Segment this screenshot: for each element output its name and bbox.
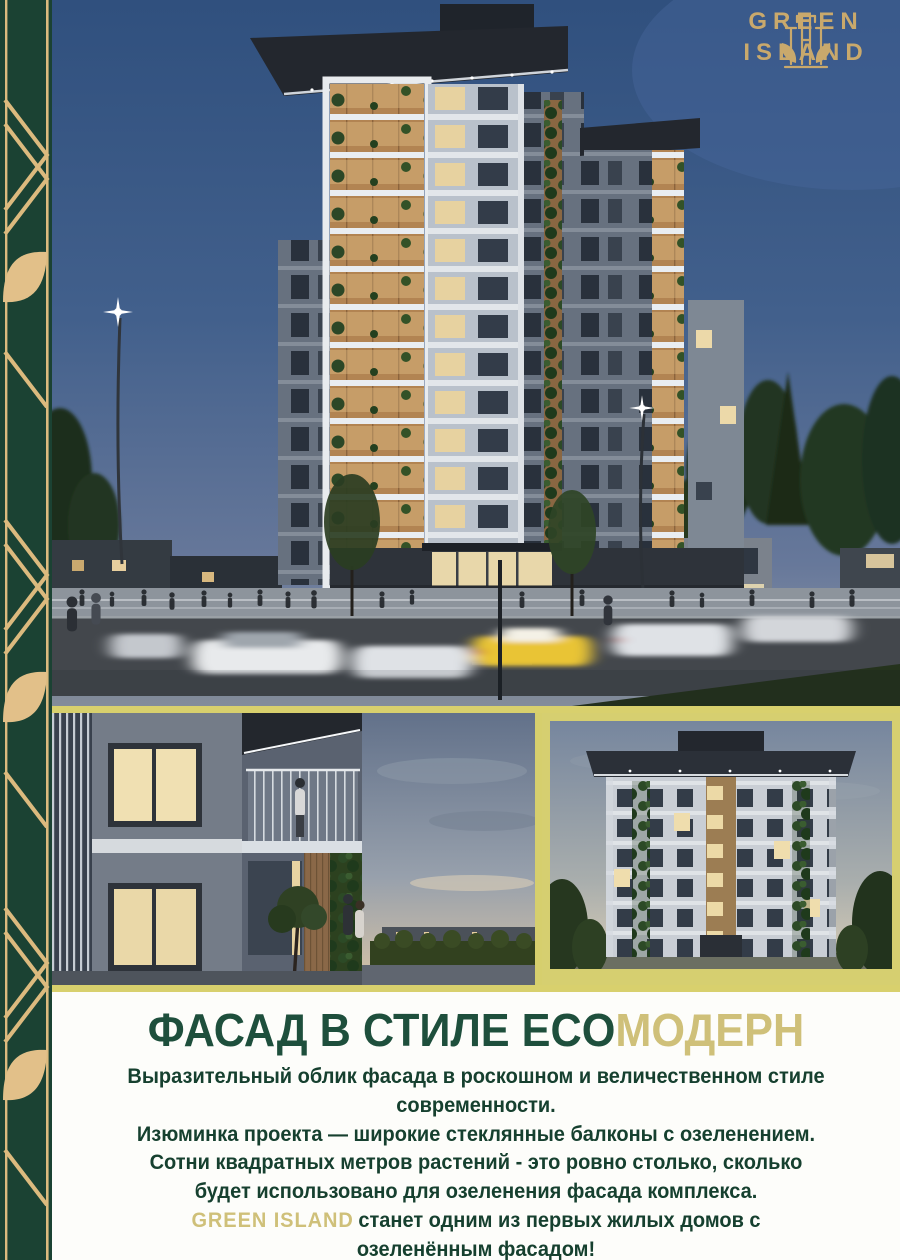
body-line: Выразительный облик фасада в роскошном и… [82,1062,871,1091]
title-green-part: ФАСАД В СТИЛЕ ECO [148,1004,616,1056]
brand-logo: GREEN ISLAND [722,6,890,68]
text-section: ФАСАД В СТИЛЕ ECOМОДЕРН Выразительный об… [52,992,900,1260]
corner-balconies [242,713,365,985]
body-copy: Выразительный облик фасада в роскошном и… [82,1062,871,1260]
highlight-rest: станет одним из первых жилых домов с [358,1208,760,1232]
decorative-sidebar [0,0,52,1260]
balcony-closeup-scene [52,713,535,985]
center-core [706,777,736,957]
body-line: будет использовано для озеленения фасада… [82,1177,871,1206]
body-line-highlight: GREEN ISLANDстанет одним из первых жилых… [82,1206,871,1235]
brand-name-inline: GREEN ISLAND [191,1208,353,1232]
sidewalk-crowd [52,588,900,618]
logo-left-leaf [782,43,796,63]
flyer-content: GREEN ISLAND [52,0,900,1260]
slat-screen [52,713,92,985]
left-wing [278,240,330,585]
entry [700,935,742,957]
title-gold-part: МОДЕРН [615,1004,804,1056]
page-title: ФАСАД В СТИЛЕ ECOМОДЕРН [77,1006,874,1054]
body-line: Изюминка проекта — широкие стеклянные ба… [82,1120,871,1149]
green-column-left [632,781,650,957]
body-line: озеленённым фасадом! [82,1235,871,1260]
body-line: современности. [82,1091,871,1120]
facade-render [542,713,900,985]
symmetric-building [586,731,856,957]
gold-divider-top [52,706,900,713]
green-column-right [792,781,810,957]
green-wall [544,100,562,560]
body-line: Сотни квадратных метров растений - это р… [82,1148,871,1177]
logo-building-leaves-icon [775,6,837,72]
facade-scene [550,721,892,969]
flyer-page: GREEN ISLAND [0,0,900,1260]
gold-divider-bottom [52,985,900,992]
hero-night-scene [52,0,900,706]
gold-divider-middle [535,713,542,985]
gallery [52,713,900,985]
sidebar-ornament-pattern [0,0,52,1260]
logo-right-leaf [816,43,830,63]
balcony-closeup-render [52,713,535,985]
building-entrance [330,543,744,591]
hero-render: GREEN ISLAND [52,0,900,706]
window-column [428,84,518,585]
